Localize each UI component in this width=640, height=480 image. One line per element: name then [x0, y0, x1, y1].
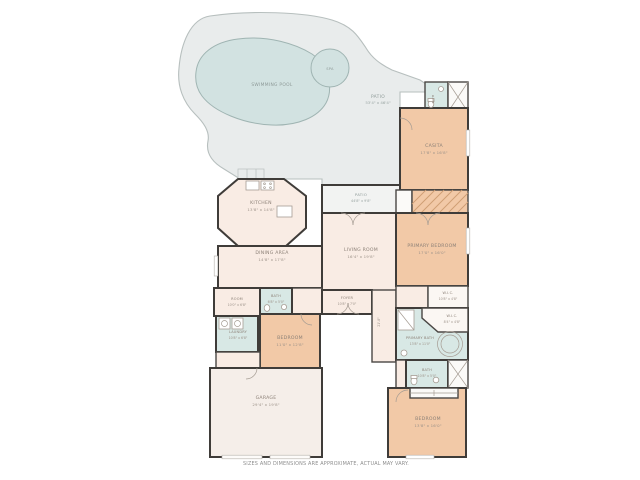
- window-icon: [214, 256, 218, 276]
- laundry-dims: 10'8" x 6'8": [229, 336, 248, 340]
- hatched-deck-strip: [412, 190, 468, 213]
- casita-bath-label: BATH: [431, 95, 435, 104]
- casita-label: CASITA: [425, 143, 443, 149]
- covered-patio-label: PATIO: [355, 192, 367, 197]
- pool-patio-dims: 53'4" x 46'4": [365, 100, 391, 105]
- living-label: LIVING ROOM: [344, 247, 378, 253]
- kitchen-dims: 13'8" x 14'8": [247, 207, 274, 212]
- garage-label: GARAGE: [256, 395, 277, 401]
- bedroom-right-label: BEDROOM: [415, 416, 441, 422]
- washer-icon: [219, 318, 230, 329]
- window-icon: [466, 228, 470, 254]
- bath-corridor: [396, 360, 406, 388]
- casita-dims: 17'8" x 16'8": [420, 150, 447, 155]
- hall-left: [292, 288, 322, 314]
- dryer-icon: [232, 318, 243, 329]
- casita: [400, 108, 468, 190]
- bath-right-dims: 10'8" x 5'0": [418, 374, 437, 378]
- bedroom-left: [260, 314, 320, 368]
- primary-bedroom-label: PRIMARY BEDROOM: [407, 243, 456, 249]
- primary-bath-label: PRIMARY BATH: [406, 336, 434, 340]
- garage-door-icon: [222, 455, 262, 459]
- linen-closet: [448, 360, 468, 388]
- bath-left-dims: 6'8" x 5'0": [268, 300, 285, 304]
- bedroom-left-label: BEDROOM: [277, 335, 303, 341]
- hall-right: [372, 290, 396, 362]
- disclaimer-text: SIZES AND DIMENSIONS ARE APPROXIMATE, AC…: [243, 461, 409, 467]
- wic-1-label: W.I.C.: [442, 291, 453, 295]
- flex-room: [214, 288, 260, 316]
- garage-hall: [216, 352, 260, 368]
- flex-room-dims: 10'0" x 6'8": [228, 303, 247, 307]
- garage-dims: 29'4" x 19'8": [252, 402, 279, 407]
- wic-2-label: W.I.C.: [446, 314, 457, 318]
- vanity-sink-icon: [401, 350, 407, 356]
- living-dims: 16'4" x 19'8": [347, 254, 374, 259]
- window-icon: [466, 130, 470, 156]
- deck-steps: [238, 169, 264, 179]
- dining-label: DINING AREA: [255, 250, 289, 256]
- primary-hall: [396, 286, 428, 308]
- garage-door-icon: [270, 455, 310, 459]
- bedroom-right-dims: 13'8" x 16'0": [414, 423, 441, 428]
- primary-bedroom-dims: 17'0" x 16'0": [418, 250, 445, 255]
- bath-right-label: BATH: [422, 368, 432, 372]
- toilet-icon: [264, 305, 270, 312]
- covered-patio-dims: 44'8" x 9'8": [351, 199, 371, 203]
- swimming-pool-label: SWIMMING POOL: [251, 82, 293, 88]
- flex-room-label: ROOM: [231, 297, 243, 301]
- dining-dims: 14'8" x 17'8": [258, 257, 285, 262]
- foyer-dims: 10'8" x 7'0": [338, 302, 357, 306]
- garage: [210, 368, 322, 457]
- bedroom-left-dims: 11'0" x 12'8": [276, 342, 303, 347]
- primary-closet-small: [396, 190, 412, 213]
- laundry-label: LAUNDRY: [229, 330, 248, 334]
- spa-label: SPA: [326, 67, 334, 71]
- floorplan-drawing: SWIMMING POOL SPA PATIO 53'4" x 46'4" PA…: [0, 0, 640, 480]
- bedroom-right-closet: [410, 388, 458, 398]
- foyer-label: FOYER: [341, 296, 354, 300]
- primary-bath-dims: 13'8" x 11'0": [410, 342, 431, 346]
- hall-dimension: 21'-8": [377, 317, 381, 327]
- window-icon: [406, 455, 434, 459]
- wic-2-dims: 8'4" x 4'8": [444, 320, 461, 324]
- bath-left-label: BATH: [271, 294, 281, 298]
- floorplan-page: SWIMMING POOL SPA PATIO 53'4" x 46'4" PA…: [0, 0, 640, 480]
- wic-1-dims: 10'8" x 4'8": [439, 297, 458, 301]
- sink-icon: [281, 304, 286, 309]
- kitchen-label: KITCHEN: [250, 200, 272, 206]
- sink-icon: [433, 377, 439, 383]
